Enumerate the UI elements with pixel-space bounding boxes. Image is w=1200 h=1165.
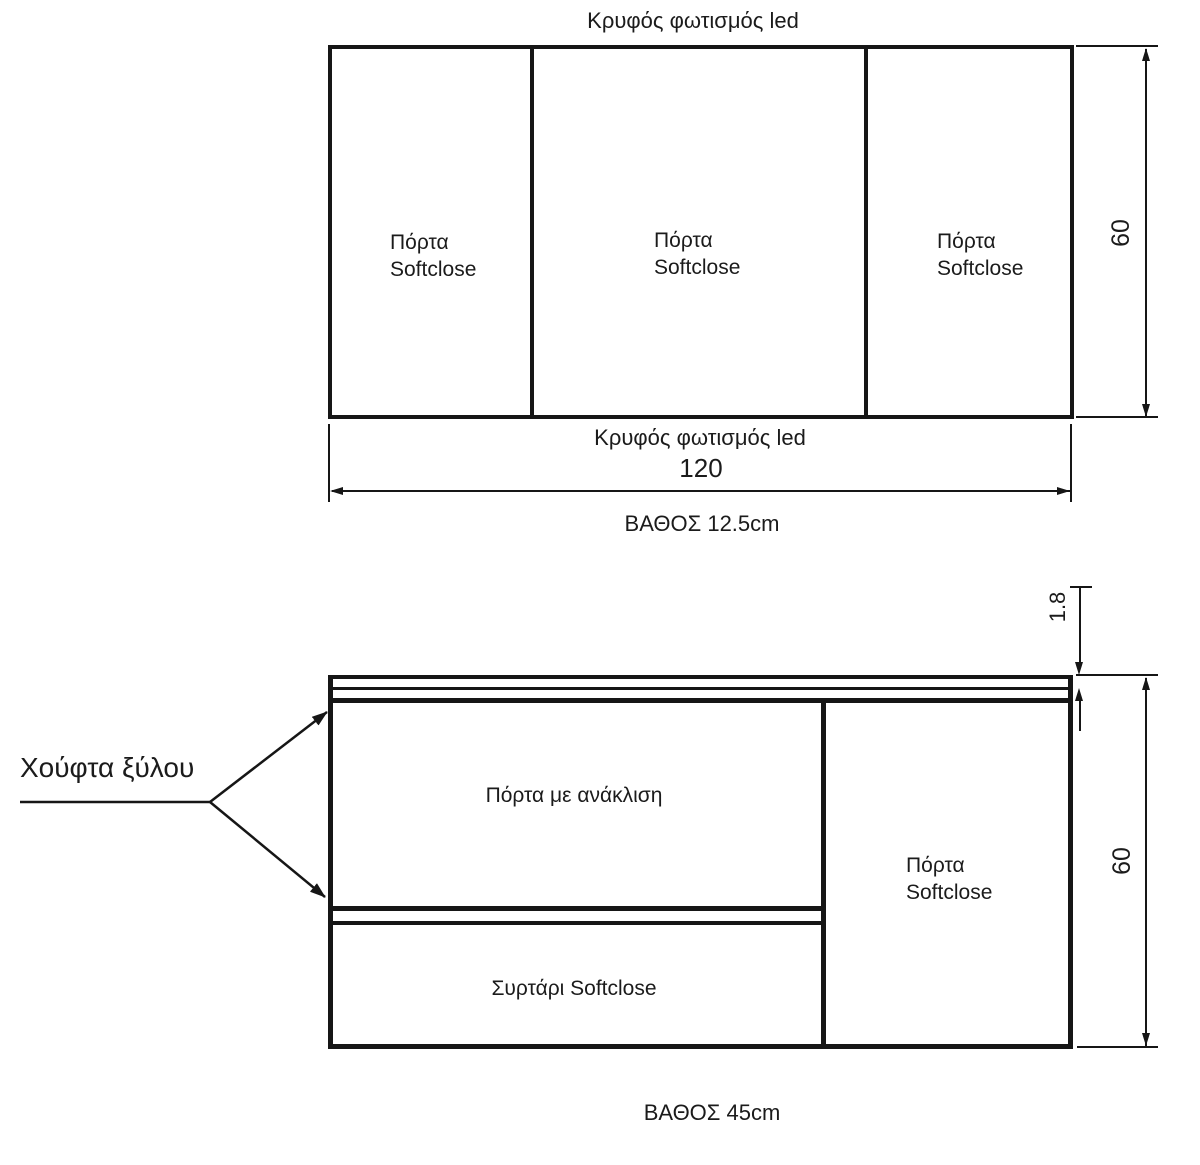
top-dim120-value: 120 <box>451 453 951 484</box>
top-door-3-line1: Πόρτα <box>937 228 1023 255</box>
top-dim120-extension-right <box>1070 424 1072 502</box>
bottom-dim18-value: 1.8 <box>1043 577 1073 637</box>
bottom-right-door-label: Πόρτα Softclose <box>906 852 992 906</box>
top-door-3-label: Πόρτα Softclose <box>937 228 1023 282</box>
top-dim120-arrowhead-right-icon <box>1057 487 1070 495</box>
bottom-cabinet-bottom-edge <box>328 1044 1073 1049</box>
top-door-1-label: Πόρτα Softclose <box>390 229 476 283</box>
top-dim60-arrowhead-down-icon <box>1142 404 1150 417</box>
drawer-label: Συρτάρι Softclose <box>324 977 824 1001</box>
bottom-right-door-line1: Πόρτα <box>906 852 992 879</box>
top-dim60-extension-top <box>1076 45 1158 47</box>
top-door-2-label: Πόρτα Softclose <box>654 227 740 281</box>
bottom-dim60-arrowhead-up-icon <box>1142 677 1150 690</box>
top-door-1-line2: Softclose <box>390 256 476 283</box>
top-dim60-value: 60 <box>1106 203 1136 263</box>
countertop-mid-line <box>330 687 1072 690</box>
top-hidden-led-label: Κρυφός φωτισμός led <box>443 8 943 34</box>
drawer-top-line <box>330 921 823 925</box>
bottom-cabinet-right-edge <box>1068 675 1073 1049</box>
bottom-dim60-extension-bottom <box>1077 1046 1158 1048</box>
bottom-dim60-value: 60 <box>1107 831 1137 891</box>
top-door-3-line2: Softclose <box>937 255 1023 282</box>
top-door-1-line1: Πόρτα <box>390 229 476 256</box>
top-dim120-line <box>332 490 1070 492</box>
bottom-right-door-line2: Softclose <box>906 879 992 906</box>
top-hidden-led-label-bottom: Κρυφός φωτισμός led <box>450 425 950 451</box>
countertop-top-line <box>330 675 1072 679</box>
bottom-dim18-line-upper <box>1079 587 1081 662</box>
top-cabinet-divider-2 <box>864 49 868 415</box>
bottom-dim60-extension-top <box>1076 674 1158 676</box>
bottom-dim18-arrowhead-up-icon <box>1075 688 1083 701</box>
top-dim60-line <box>1145 49 1147 417</box>
technical-drawing-canvas: Κρυφός φωτισμός led Πόρτα Softclose Πόρτ… <box>0 0 1200 1165</box>
countertop-bottom-line <box>330 698 1072 703</box>
top-dim120-arrowhead-left-icon <box>330 487 343 495</box>
bottom-dim18-tick <box>1070 586 1092 588</box>
top-cabinet-divider-1 <box>530 49 534 415</box>
tilt-door-label: Πόρτα με ανάκλιση <box>324 784 824 808</box>
top-door-2-line2: Softclose <box>654 254 740 281</box>
top-door-2-line1: Πόρτα <box>654 227 740 254</box>
top-depth-label: ΒΑΘΟΣ 12.5cm <box>452 511 952 537</box>
bottom-dim60-arrowhead-down-icon <box>1142 1033 1150 1046</box>
tilt-door-bottom-line <box>330 906 823 911</box>
bottom-dim18-line-lower <box>1079 701 1081 731</box>
bottom-dim60-line <box>1145 678 1147 1046</box>
wood-handle-leader-arrows <box>0 695 340 910</box>
top-dim60-arrowhead-up-icon <box>1142 48 1150 61</box>
bottom-depth-label: ΒΑΘΟΣ 45cm <box>462 1100 962 1126</box>
